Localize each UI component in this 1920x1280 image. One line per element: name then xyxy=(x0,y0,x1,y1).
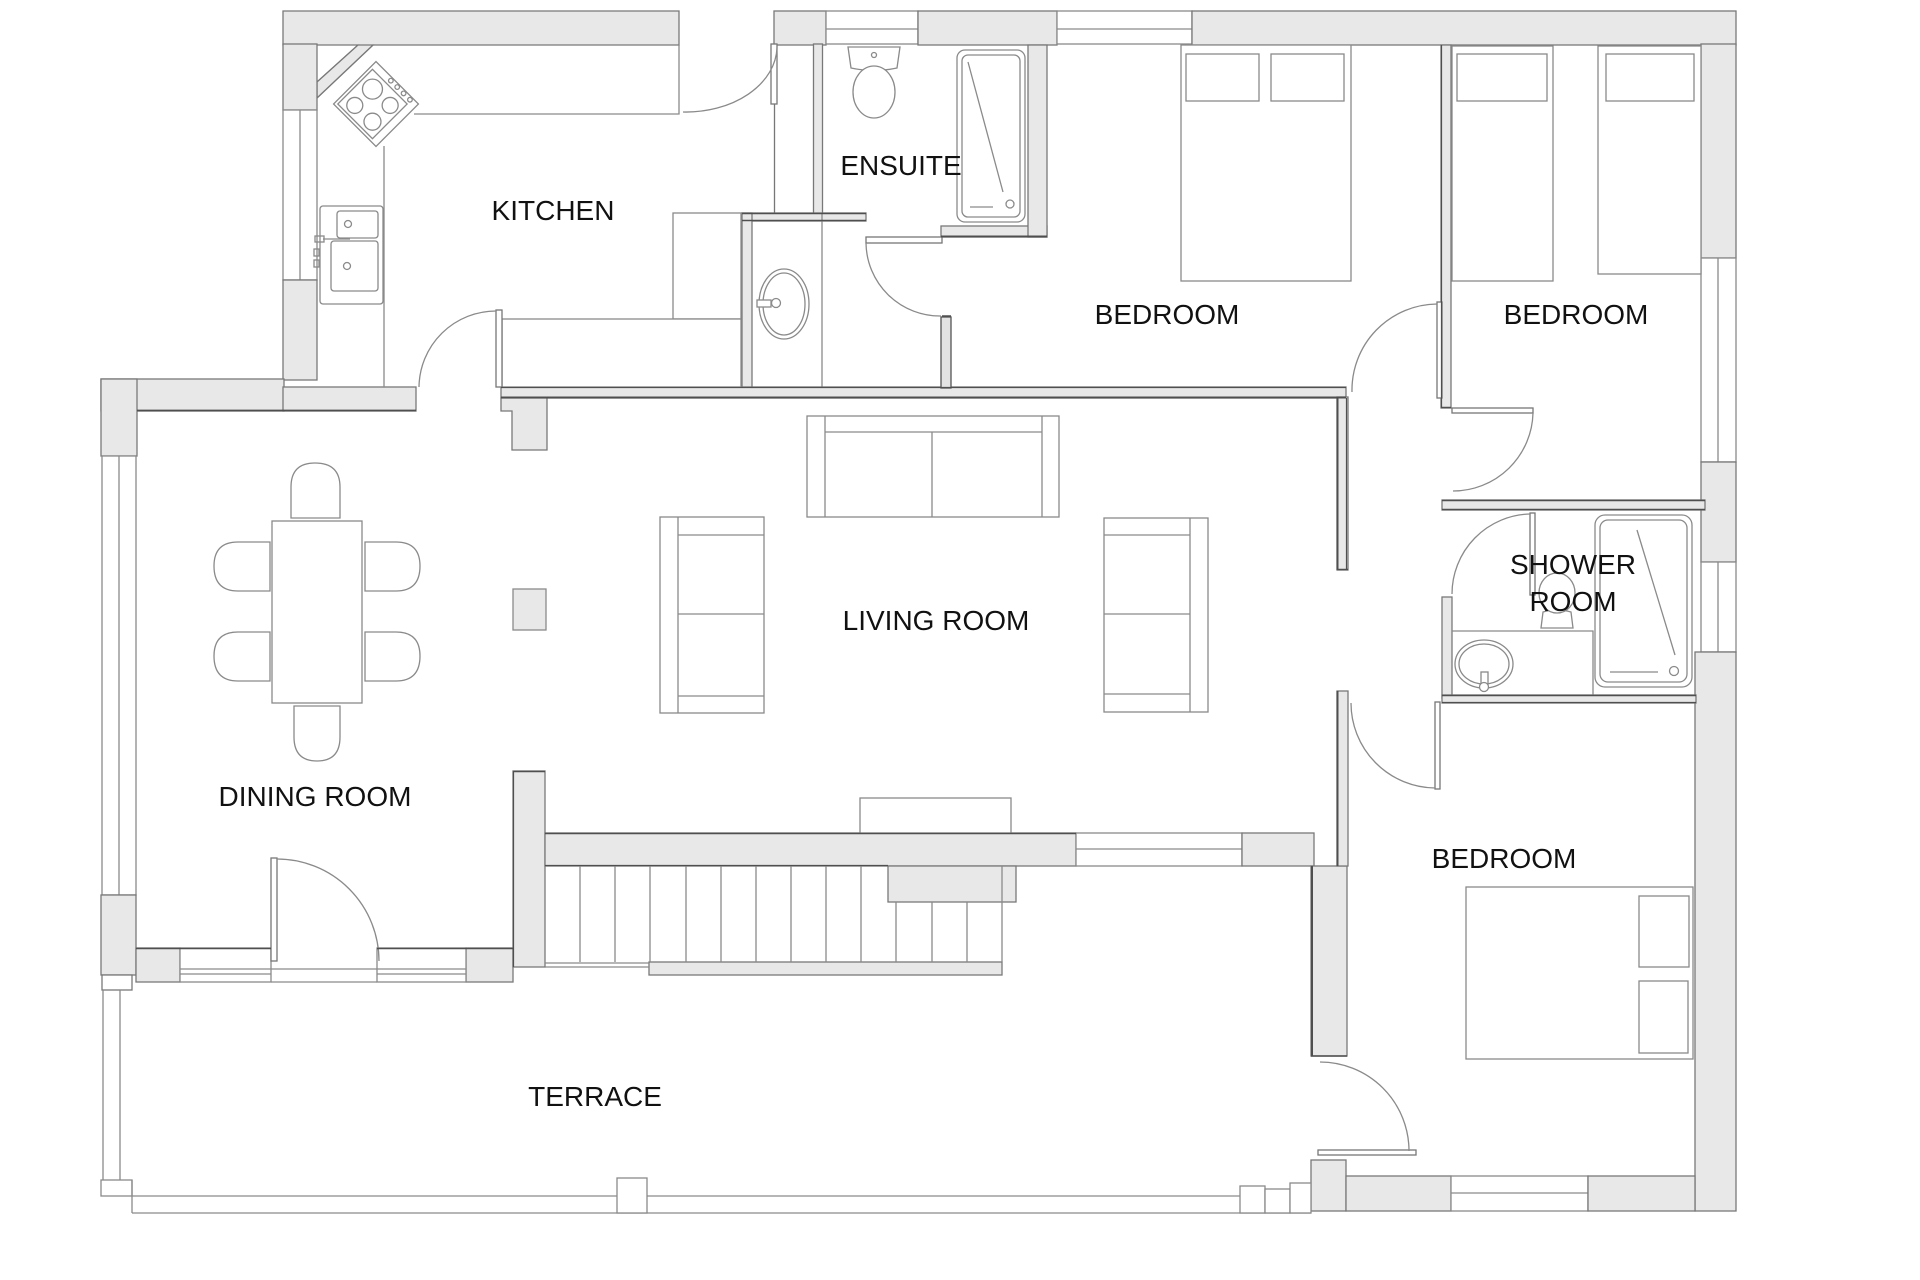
svg-text:ROOM: ROOM xyxy=(1529,586,1616,617)
svg-text:BEDROOM: BEDROOM xyxy=(1504,299,1649,330)
svg-text:BEDROOM: BEDROOM xyxy=(1432,843,1577,874)
svg-text:DINING ROOM: DINING ROOM xyxy=(219,781,412,812)
svg-text:LIVING ROOM: LIVING ROOM xyxy=(843,605,1030,636)
svg-text:BEDROOM: BEDROOM xyxy=(1095,299,1240,330)
svg-text:KITCHEN: KITCHEN xyxy=(492,195,615,226)
svg-text:SHOWER: SHOWER xyxy=(1510,549,1636,580)
svg-text:ENSUITE: ENSUITE xyxy=(840,150,961,181)
svg-text:TERRACE: TERRACE xyxy=(528,1081,662,1112)
